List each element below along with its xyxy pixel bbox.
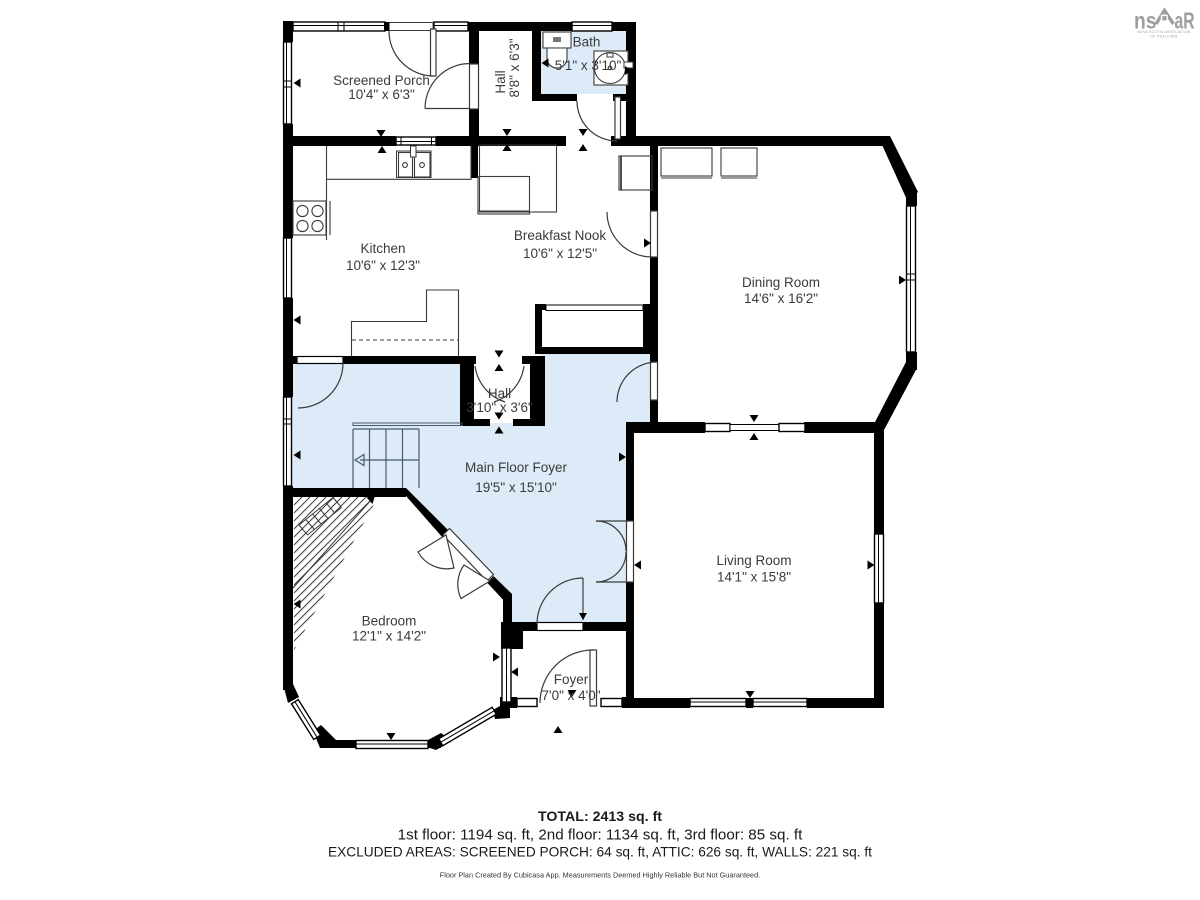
svg-text:Hall: Hall xyxy=(493,70,508,93)
svg-text:Hall: Hall xyxy=(488,386,511,401)
svg-text:12'1" x 14'2": 12'1" x 14'2" xyxy=(352,629,426,644)
svg-text:8'8" x 6'3": 8'8" x 6'3" xyxy=(507,38,522,97)
svg-text:10'6" x 12'3": 10'6" x 12'3" xyxy=(346,258,420,273)
svg-text:Foyer: Foyer xyxy=(554,672,589,687)
svg-text:Screened Porch: Screened Porch xyxy=(333,73,430,88)
svg-text:Dining Room: Dining Room xyxy=(742,275,820,290)
svg-text:Living Room: Living Room xyxy=(716,553,791,568)
svg-text:TOTAL: 2413 sq. ft: TOTAL: 2413 sq. ft xyxy=(538,809,662,825)
svg-text:Kitchen: Kitchen xyxy=(360,241,405,256)
svg-text:19'5" x 15'10": 19'5" x 15'10" xyxy=(475,480,557,495)
svg-text:OF REALTORS: OF REALTORS xyxy=(1151,34,1178,38)
svg-text:3'10" x 3'6": 3'10" x 3'6" xyxy=(466,400,533,415)
svg-text:10'4" x 6'3": 10'4" x 6'3" xyxy=(348,87,415,102)
svg-text:Bedroom: Bedroom xyxy=(362,614,417,629)
svg-text:10'6" x 12'5": 10'6" x 12'5" xyxy=(523,246,597,261)
svg-text:EXCLUDED AREAS: SCREENED PORCH: EXCLUDED AREAS: SCREENED PORCH: 64 sq. f… xyxy=(328,845,872,860)
svg-text:Floor Plan Created By Cubicasa: Floor Plan Created By Cubicasa App. Meas… xyxy=(440,871,760,880)
svg-text:Bath: Bath xyxy=(573,35,601,50)
svg-text:1st floor: 1194 sq. ft, 2nd fl: 1st floor: 1194 sq. ft, 2nd floor: 1134 … xyxy=(398,827,803,844)
svg-text:14'6" x 16'2": 14'6" x 16'2" xyxy=(744,291,818,306)
svg-text:7'0" x 4'0": 7'0" x 4'0" xyxy=(541,688,600,703)
svg-text:14'1" x 15'8": 14'1" x 15'8" xyxy=(717,570,791,585)
svg-text:Breakfast Nook: Breakfast Nook xyxy=(514,228,607,243)
svg-text:Main Floor Foyer: Main Floor Foyer xyxy=(465,460,568,475)
svg-text:5'1" x 3'10": 5'1" x 3'10" xyxy=(555,58,622,73)
